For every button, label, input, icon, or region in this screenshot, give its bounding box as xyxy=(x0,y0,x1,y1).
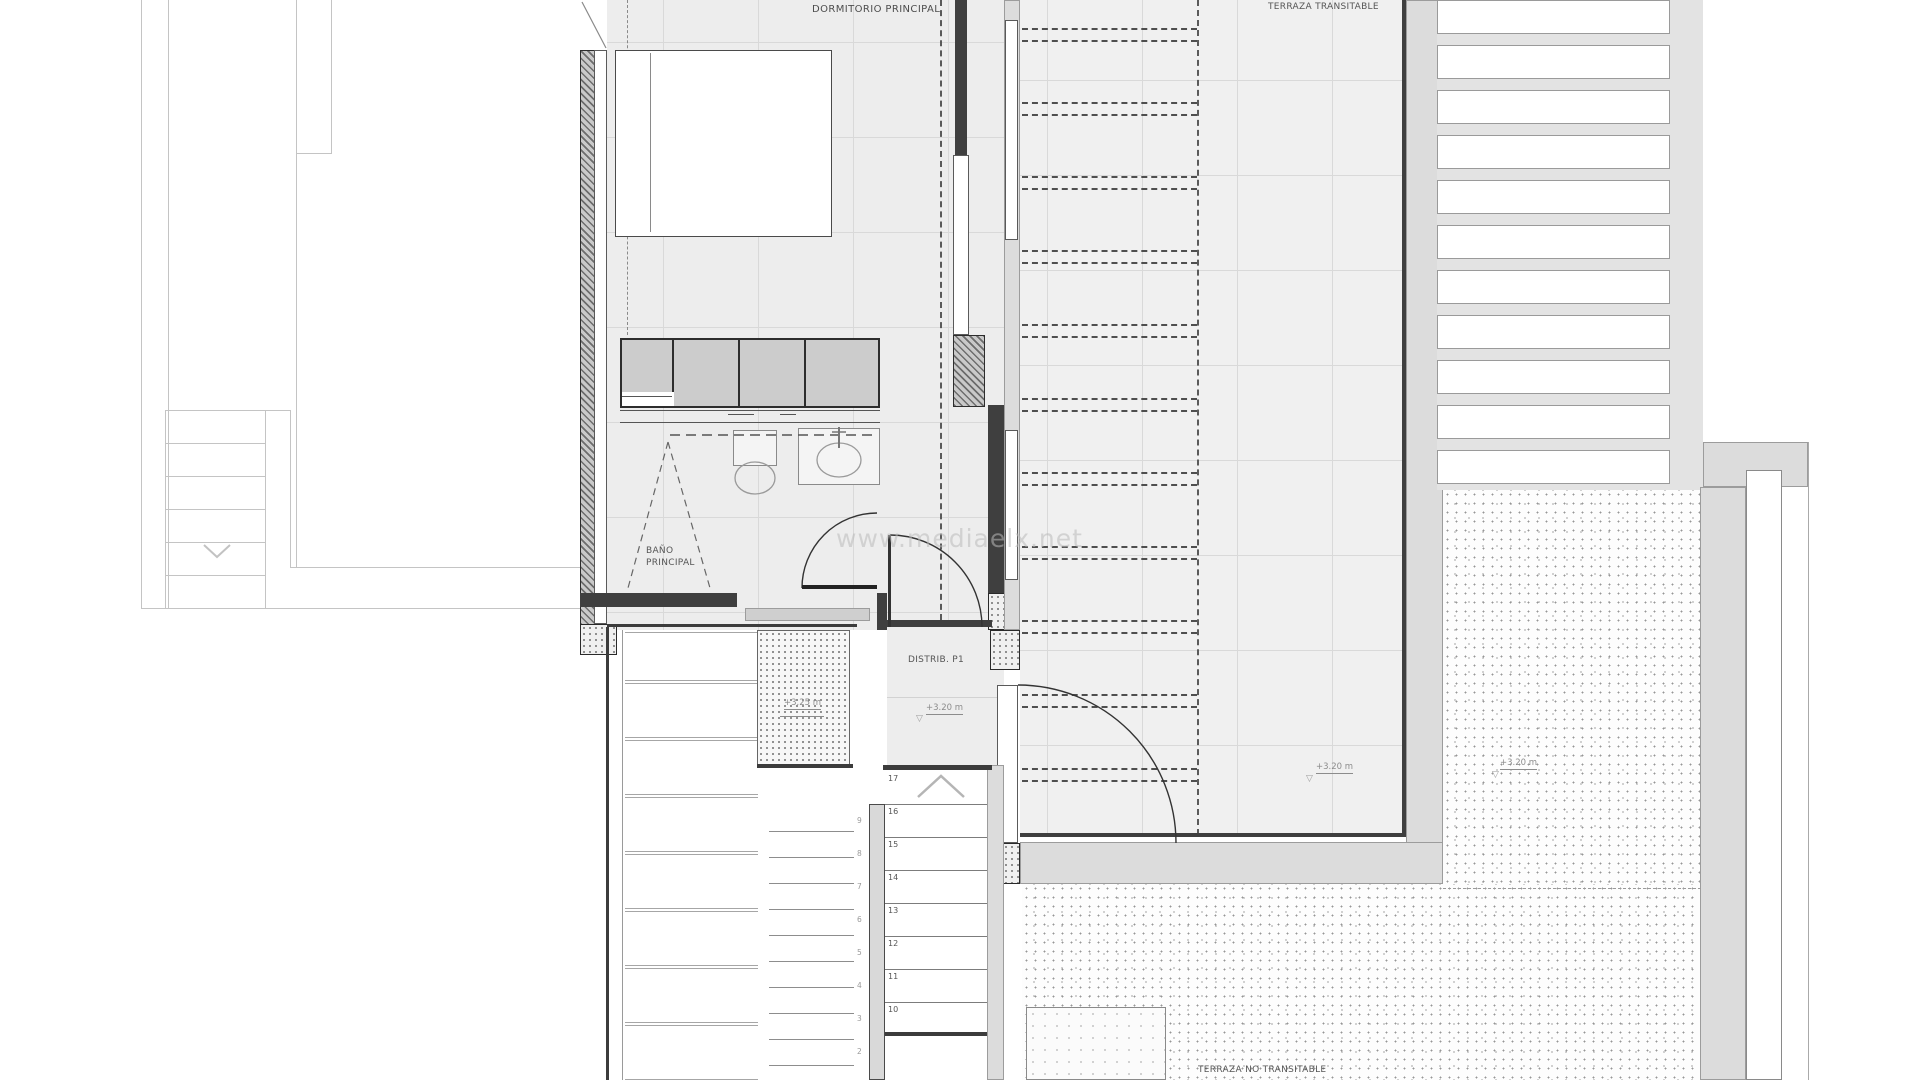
corridor-right-wall xyxy=(988,405,1004,593)
distributor-floor xyxy=(887,627,1004,765)
stair-step-number: 13 xyxy=(888,906,898,915)
stair-step-number: 14 xyxy=(888,873,898,882)
wardrobe-front-band xyxy=(620,410,880,423)
bedroom-right-window xyxy=(953,155,969,335)
bedroom-label: DORMITORIO PRINCIPAL xyxy=(812,4,940,17)
bedroom-right-wall-upper xyxy=(955,0,967,155)
bedroom-right-pier xyxy=(953,335,985,407)
stair-step-number: 11 xyxy=(888,972,898,981)
left-wall-glazing xyxy=(594,50,607,624)
gravel-walkway xyxy=(1026,1007,1166,1080)
stair-left-inner-line xyxy=(622,630,623,1080)
terrace-floor xyxy=(1020,0,1404,835)
landing-sill xyxy=(745,608,870,621)
bed-head-line xyxy=(650,53,651,232)
distributor-top-wall xyxy=(887,620,992,627)
stair-flight-upper: 17 16 15 14 13 12 11 10 xyxy=(885,772,987,1034)
level-triangle-icon: ▽ xyxy=(916,714,923,724)
right-edge-line xyxy=(1808,442,1809,1080)
vanity-counter xyxy=(798,428,880,485)
terrace-walkable-label: TERRAZA TRANSITABLE xyxy=(1268,2,1379,14)
stair-step-number: 10 xyxy=(888,1005,898,1014)
wardrobe-door xyxy=(740,340,806,406)
terrace-non-walkable-label: TERRAZA NO TRANSITABLE xyxy=(1198,1065,1326,1077)
stair-step-number: 17 xyxy=(888,774,898,783)
window-opening-diagonal xyxy=(582,2,606,48)
floor-plan-canvas: { "labels": { "bedroom": "DORMITORIO PRI… xyxy=(0,0,1920,1080)
distributor-floor-line xyxy=(887,697,1004,698)
stair-step-number: 16 xyxy=(888,807,898,816)
bathroom-label: BAÑO PRINCIPAL xyxy=(646,546,695,569)
stair-step-number: 12 xyxy=(888,939,898,948)
stair-step-number: 15 xyxy=(888,840,898,849)
distributor-label: DISTRIB. P1 xyxy=(908,655,964,667)
stair-block-top-line xyxy=(607,624,857,627)
terrace-left-window-2 xyxy=(1005,430,1018,580)
level-marker-terrace: +3.20 m xyxy=(1316,762,1353,772)
wardrobe-door xyxy=(674,340,740,406)
gravel-terrace-right xyxy=(1443,490,1702,884)
level-marker-stair-patio: +3.25 m xyxy=(784,698,821,708)
terrace-bottom-wall xyxy=(1020,833,1406,837)
stair-down-chevron-icon xyxy=(204,545,230,557)
pergola-slats xyxy=(1437,0,1703,490)
terrace-left-window-1 xyxy=(1005,20,1018,240)
wardrobe-shelf-line xyxy=(622,396,672,397)
bathroom-bottom-stub xyxy=(877,593,887,630)
wardrobe-door xyxy=(622,340,674,392)
beam-edge-dashed-line xyxy=(1197,0,1199,835)
stair-flight-middle xyxy=(769,806,854,1080)
right-white-strip xyxy=(1746,470,1782,1080)
level-triangle-icon: ▽ xyxy=(1306,774,1313,784)
wardrobe xyxy=(620,338,880,408)
wardrobe-door xyxy=(806,340,878,406)
toilet-cistern xyxy=(733,430,777,466)
watermark: www.mediaelx.net xyxy=(836,524,1083,553)
right-vertical-band xyxy=(1700,487,1746,1080)
left-wall-pier xyxy=(580,624,617,655)
stair-left-wall xyxy=(606,627,609,1080)
stair-flight-lower xyxy=(625,630,758,1080)
level-marker-gravel: +3.20 m xyxy=(1500,758,1537,768)
bathroom-bottom-wall xyxy=(580,593,737,607)
bed xyxy=(615,50,832,237)
terrace-door-pier-top xyxy=(990,630,1020,670)
level-marker-underline2 xyxy=(780,716,824,717)
level-triangle-icon: ▽ xyxy=(1492,770,1499,780)
stair-center-wall xyxy=(869,804,885,1080)
level-marker-distributor: +3.20 m xyxy=(926,703,963,713)
stair-patio-bottom-wall xyxy=(757,764,853,768)
stair-landing-line xyxy=(885,1032,987,1036)
stair-top-wall xyxy=(883,765,992,770)
terrace-bottom-parapet xyxy=(1020,842,1443,884)
gravel-dashed-line xyxy=(1443,888,1701,889)
stair-right-wall xyxy=(987,765,1004,1080)
